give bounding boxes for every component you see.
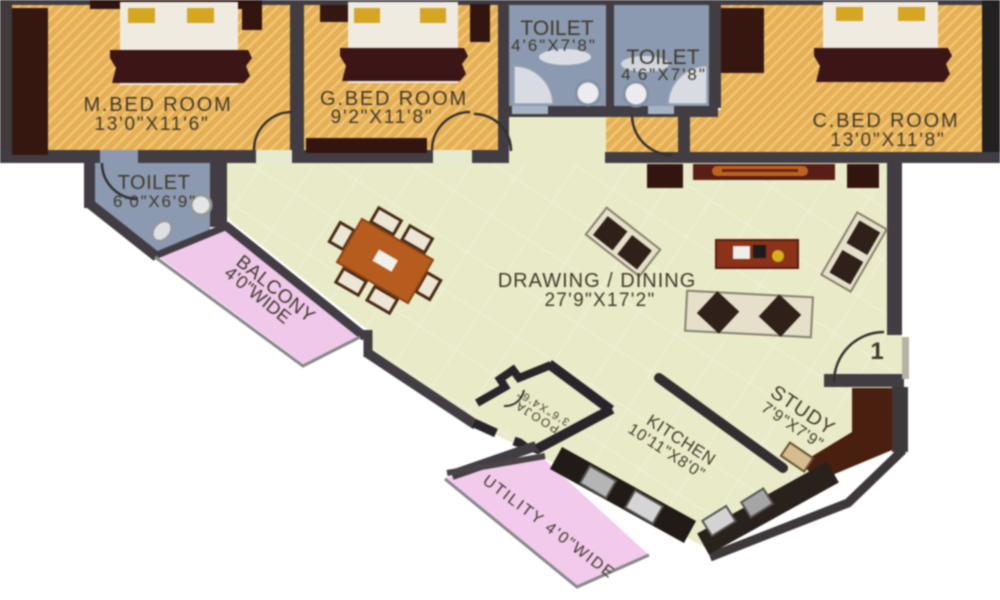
svg-text:M.BED ROOM: M.BED ROOM bbox=[83, 94, 232, 116]
svg-text:9'2"X11'8": 9'2"X11'8" bbox=[331, 107, 434, 128]
svg-text:6'0"X6'9": 6'0"X6'9" bbox=[113, 192, 197, 211]
svg-text:4'6"X7'8": 4'6"X7'8" bbox=[511, 36, 597, 55]
svg-text:27'9"X17'2": 27'9"X17'2" bbox=[544, 290, 655, 311]
svg-text:13'0"X11'8": 13'0"X11'8" bbox=[830, 130, 945, 151]
svg-text:TOILET: TOILET bbox=[118, 172, 191, 194]
svg-text:1: 1 bbox=[870, 338, 883, 365]
svg-text:4'6"X7'8": 4'6"X7'8" bbox=[621, 65, 707, 84]
svg-text:C.BED ROOM: C.BED ROOM bbox=[813, 110, 960, 132]
svg-text:13'0"X11'6": 13'0"X11'6" bbox=[94, 114, 209, 135]
svg-text:DRAWING / DINING: DRAWING / DINING bbox=[498, 270, 697, 292]
